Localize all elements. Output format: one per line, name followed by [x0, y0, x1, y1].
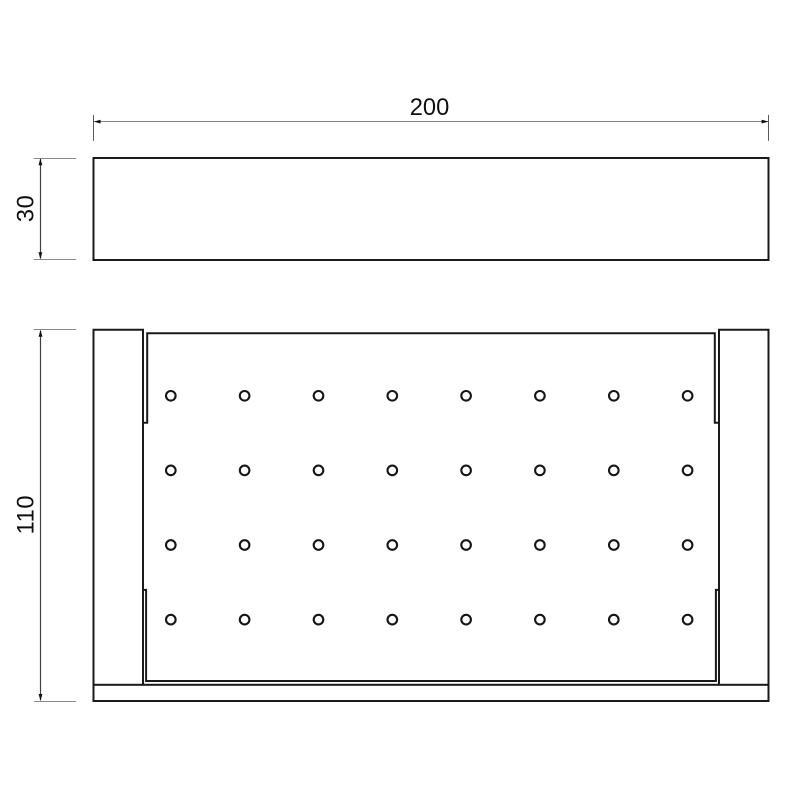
- svg-text:200: 200: [410, 95, 450, 121]
- svg-text:110: 110: [14, 495, 40, 535]
- svg-text:30: 30: [13, 195, 39, 223]
